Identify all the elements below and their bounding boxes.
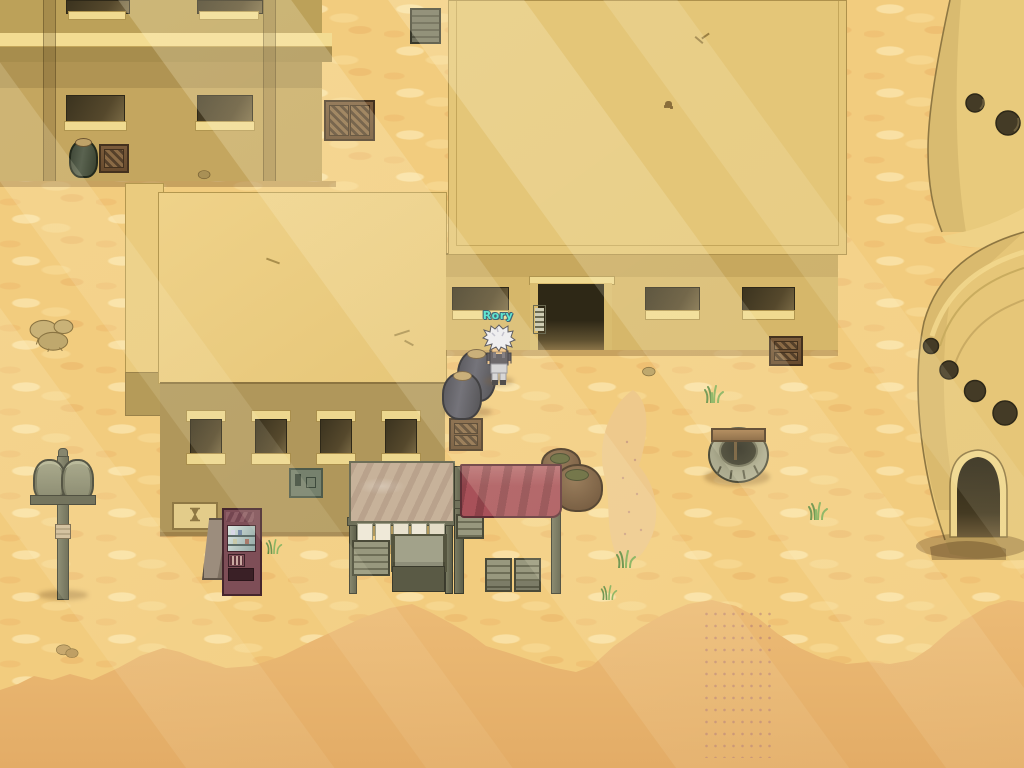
sand-speckles <box>702 608 772 758</box>
machine-label <box>228 554 245 567</box>
crate-stack[interactable] <box>324 100 375 141</box>
player-hair <box>483 325 515 351</box>
window <box>385 419 417 457</box>
window-sill <box>199 11 259 20</box>
crate-slats <box>350 105 370 136</box>
awning-tan <box>349 461 455 523</box>
window-cap <box>186 453 226 465</box>
tower-door-opening <box>957 457 1000 537</box>
machine-top <box>226 512 254 522</box>
item <box>231 530 235 535</box>
player-pants <box>491 364 507 373</box>
crate-slats <box>104 149 124 168</box>
player-boot <box>492 380 498 385</box>
roof-inset-line <box>456 1 839 246</box>
market-stall-tan[interactable] <box>345 458 455 594</box>
window <box>320 419 352 457</box>
crate[interactable] <box>449 418 483 451</box>
dark-sand-band <box>0 590 1024 768</box>
blue-jar[interactable] <box>442 372 482 420</box>
dry-bush <box>28 316 76 352</box>
window-sill <box>64 121 127 131</box>
panel-detail <box>295 474 301 486</box>
pot-cap <box>565 469 589 481</box>
crate <box>485 558 512 592</box>
roof-mark <box>665 101 672 108</box>
player-boot <box>500 380 506 385</box>
jar-lid <box>453 371 472 381</box>
machine-glass <box>227 525 256 552</box>
vending-machine[interactable] <box>222 508 262 596</box>
utility-panel[interactable] <box>289 468 323 498</box>
pole-wrap <box>55 524 71 539</box>
item <box>238 530 242 535</box>
game-viewport[interactable]: Rory <box>0 0 1024 768</box>
door-sign[interactable] <box>533 305 546 334</box>
shelf-line <box>228 544 255 546</box>
dry-bush <box>54 642 81 661</box>
crate <box>514 558 541 592</box>
window-sill <box>195 121 255 131</box>
crate-slats <box>774 352 798 361</box>
crate[interactable] <box>99 144 129 173</box>
grass-tuft <box>600 585 618 600</box>
stone-well[interactable] <box>700 420 775 490</box>
item <box>245 539 249 544</box>
two-story-house <box>0 0 340 190</box>
player-nametag: Rory <box>468 309 528 322</box>
crate-stack[interactable] <box>769 336 803 366</box>
dry-bush <box>641 365 659 379</box>
grass-tuft <box>806 502 830 520</box>
window-sill <box>68 11 126 20</box>
shelf-line <box>228 535 255 537</box>
eave-band <box>446 253 838 277</box>
stone-tower <box>900 0 1024 575</box>
window-sill <box>742 310 795 320</box>
hourglass-icon <box>189 507 201 522</box>
window-sill <box>645 310 700 320</box>
crate-slats <box>454 423 478 434</box>
grass-tuft <box>703 385 725 403</box>
crate-slats <box>329 105 349 136</box>
street-post-barrels[interactable] <box>25 444 105 604</box>
well-beam <box>711 428 766 442</box>
main-roof <box>158 192 447 384</box>
jar-lid <box>75 138 92 147</box>
crate[interactable] <box>410 8 441 44</box>
door-opening[interactable] <box>538 284 604 350</box>
flat-roof <box>448 0 847 255</box>
window-cap <box>251 453 291 465</box>
panel-detail <box>306 477 316 488</box>
item <box>233 539 237 544</box>
flat-roof-house <box>430 0 850 360</box>
market-stall-red[interactable] <box>450 460 562 594</box>
awning-red <box>460 464 562 518</box>
player-character[interactable] <box>482 324 516 386</box>
grass-tuft <box>265 539 283 554</box>
crate <box>352 540 390 576</box>
pilaster <box>263 0 276 181</box>
grass-tuft <box>615 550 637 568</box>
platform <box>30 495 96 505</box>
crate-slats <box>774 341 798 350</box>
crate-pair <box>485 558 541 592</box>
window <box>255 419 287 457</box>
dry-bush <box>196 168 213 182</box>
crate-base <box>392 566 445 592</box>
dispenser-slot[interactable] <box>228 568 254 581</box>
crate-slats <box>454 435 478 446</box>
window <box>190 419 222 457</box>
pilaster <box>43 0 56 181</box>
